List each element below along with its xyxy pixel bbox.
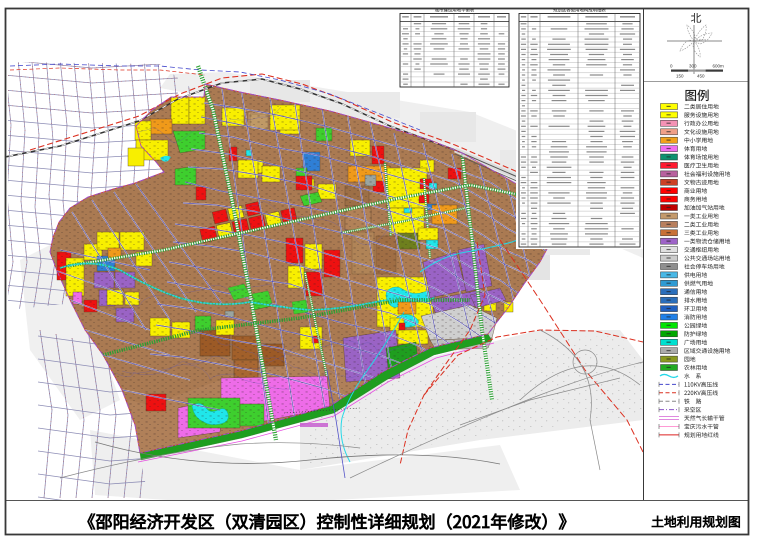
svg-text:150: 150: [676, 74, 684, 79]
svg-text:450: 450: [697, 74, 705, 79]
svg-text:300: 300: [689, 64, 697, 69]
svg-text:600m: 600m: [713, 64, 725, 69]
